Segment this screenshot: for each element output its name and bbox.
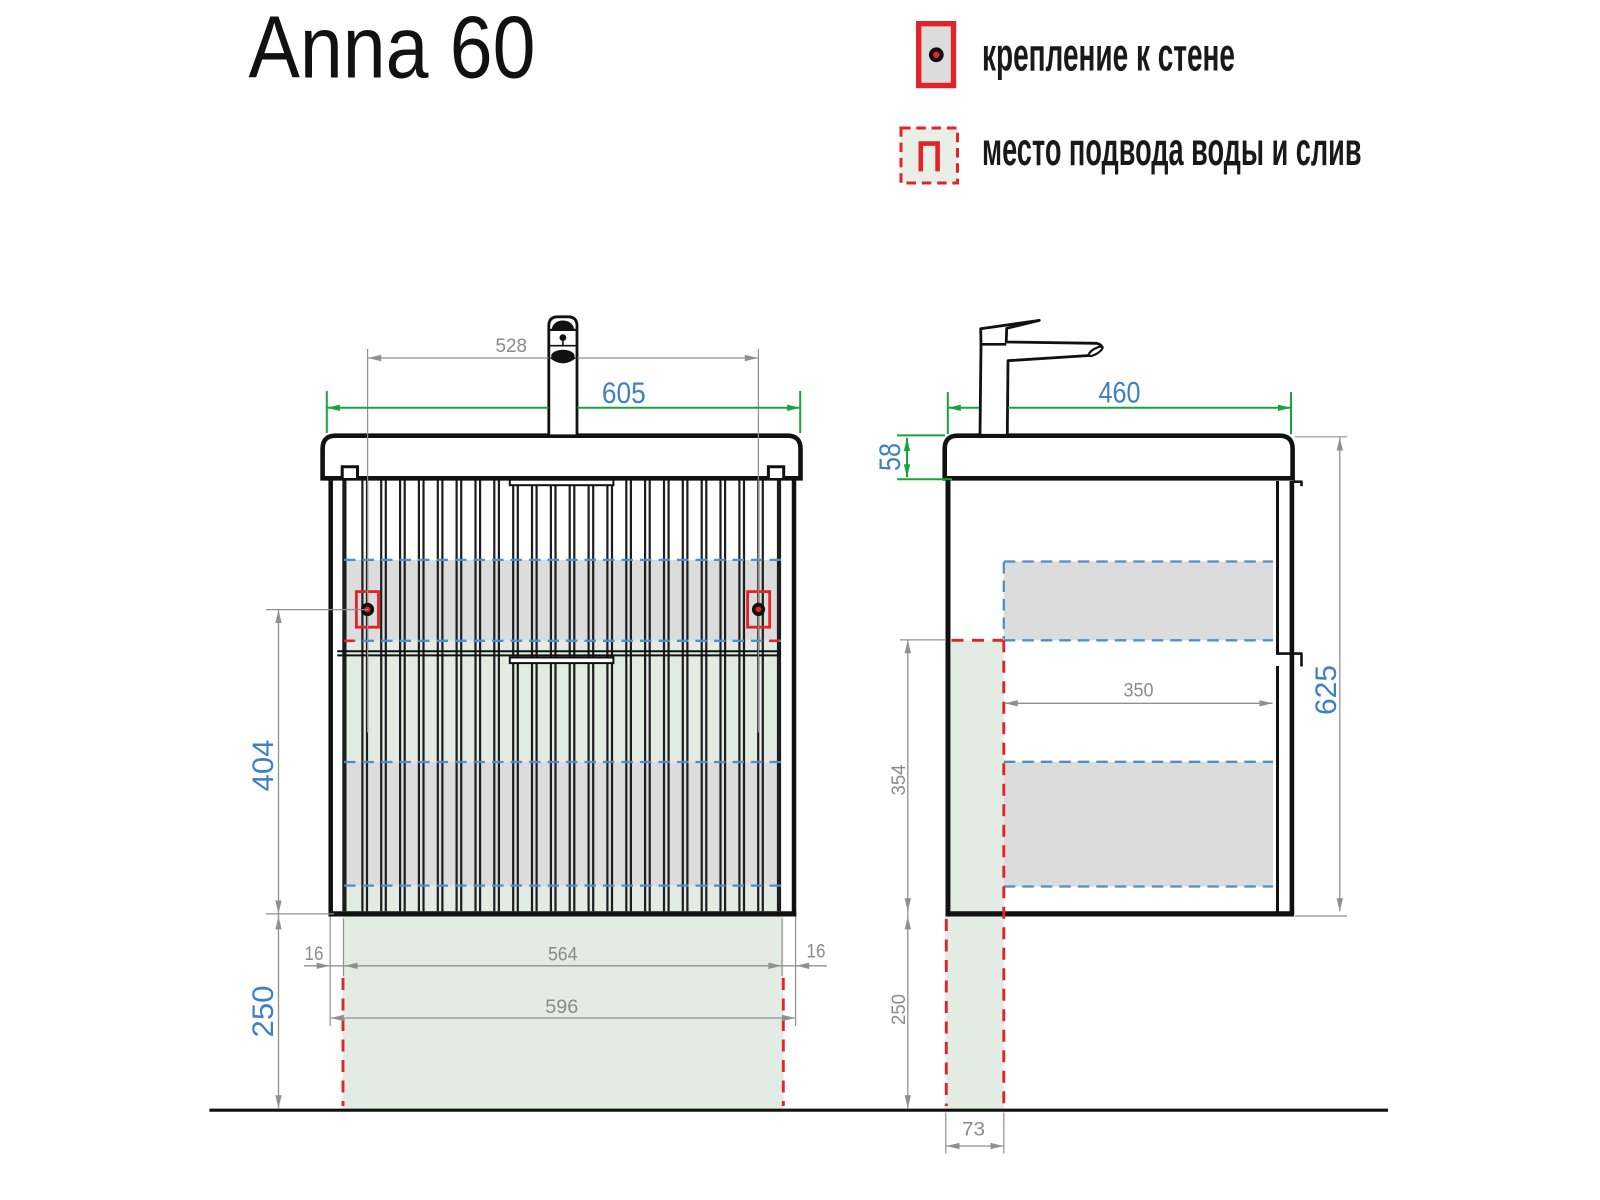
- svg-text:354: 354: [888, 764, 910, 795]
- svg-text:596: 596: [545, 996, 578, 1018]
- svg-text:625: 625: [1310, 665, 1343, 715]
- svg-text:16: 16: [305, 943, 324, 965]
- svg-text:350: 350: [1124, 680, 1154, 702]
- svg-text:528: 528: [496, 335, 528, 357]
- svg-text:460: 460: [1099, 377, 1141, 410]
- svg-text:Anna 60: Anna 60: [249, 0, 536, 96]
- svg-text:73: 73: [962, 1118, 985, 1140]
- svg-text:564: 564: [548, 943, 578, 965]
- svg-text:250: 250: [888, 994, 910, 1025]
- svg-text:250: 250: [247, 986, 280, 1038]
- svg-text:58: 58: [874, 443, 907, 471]
- svg-text:16: 16: [807, 941, 826, 963]
- svg-text:605: 605: [602, 377, 646, 410]
- svg-text:место подвода воды и слив: место подвода воды и слив: [982, 123, 1362, 175]
- svg-text:404: 404: [247, 740, 280, 792]
- svg-text:крепление к стене: крепление к стене: [982, 28, 1235, 80]
